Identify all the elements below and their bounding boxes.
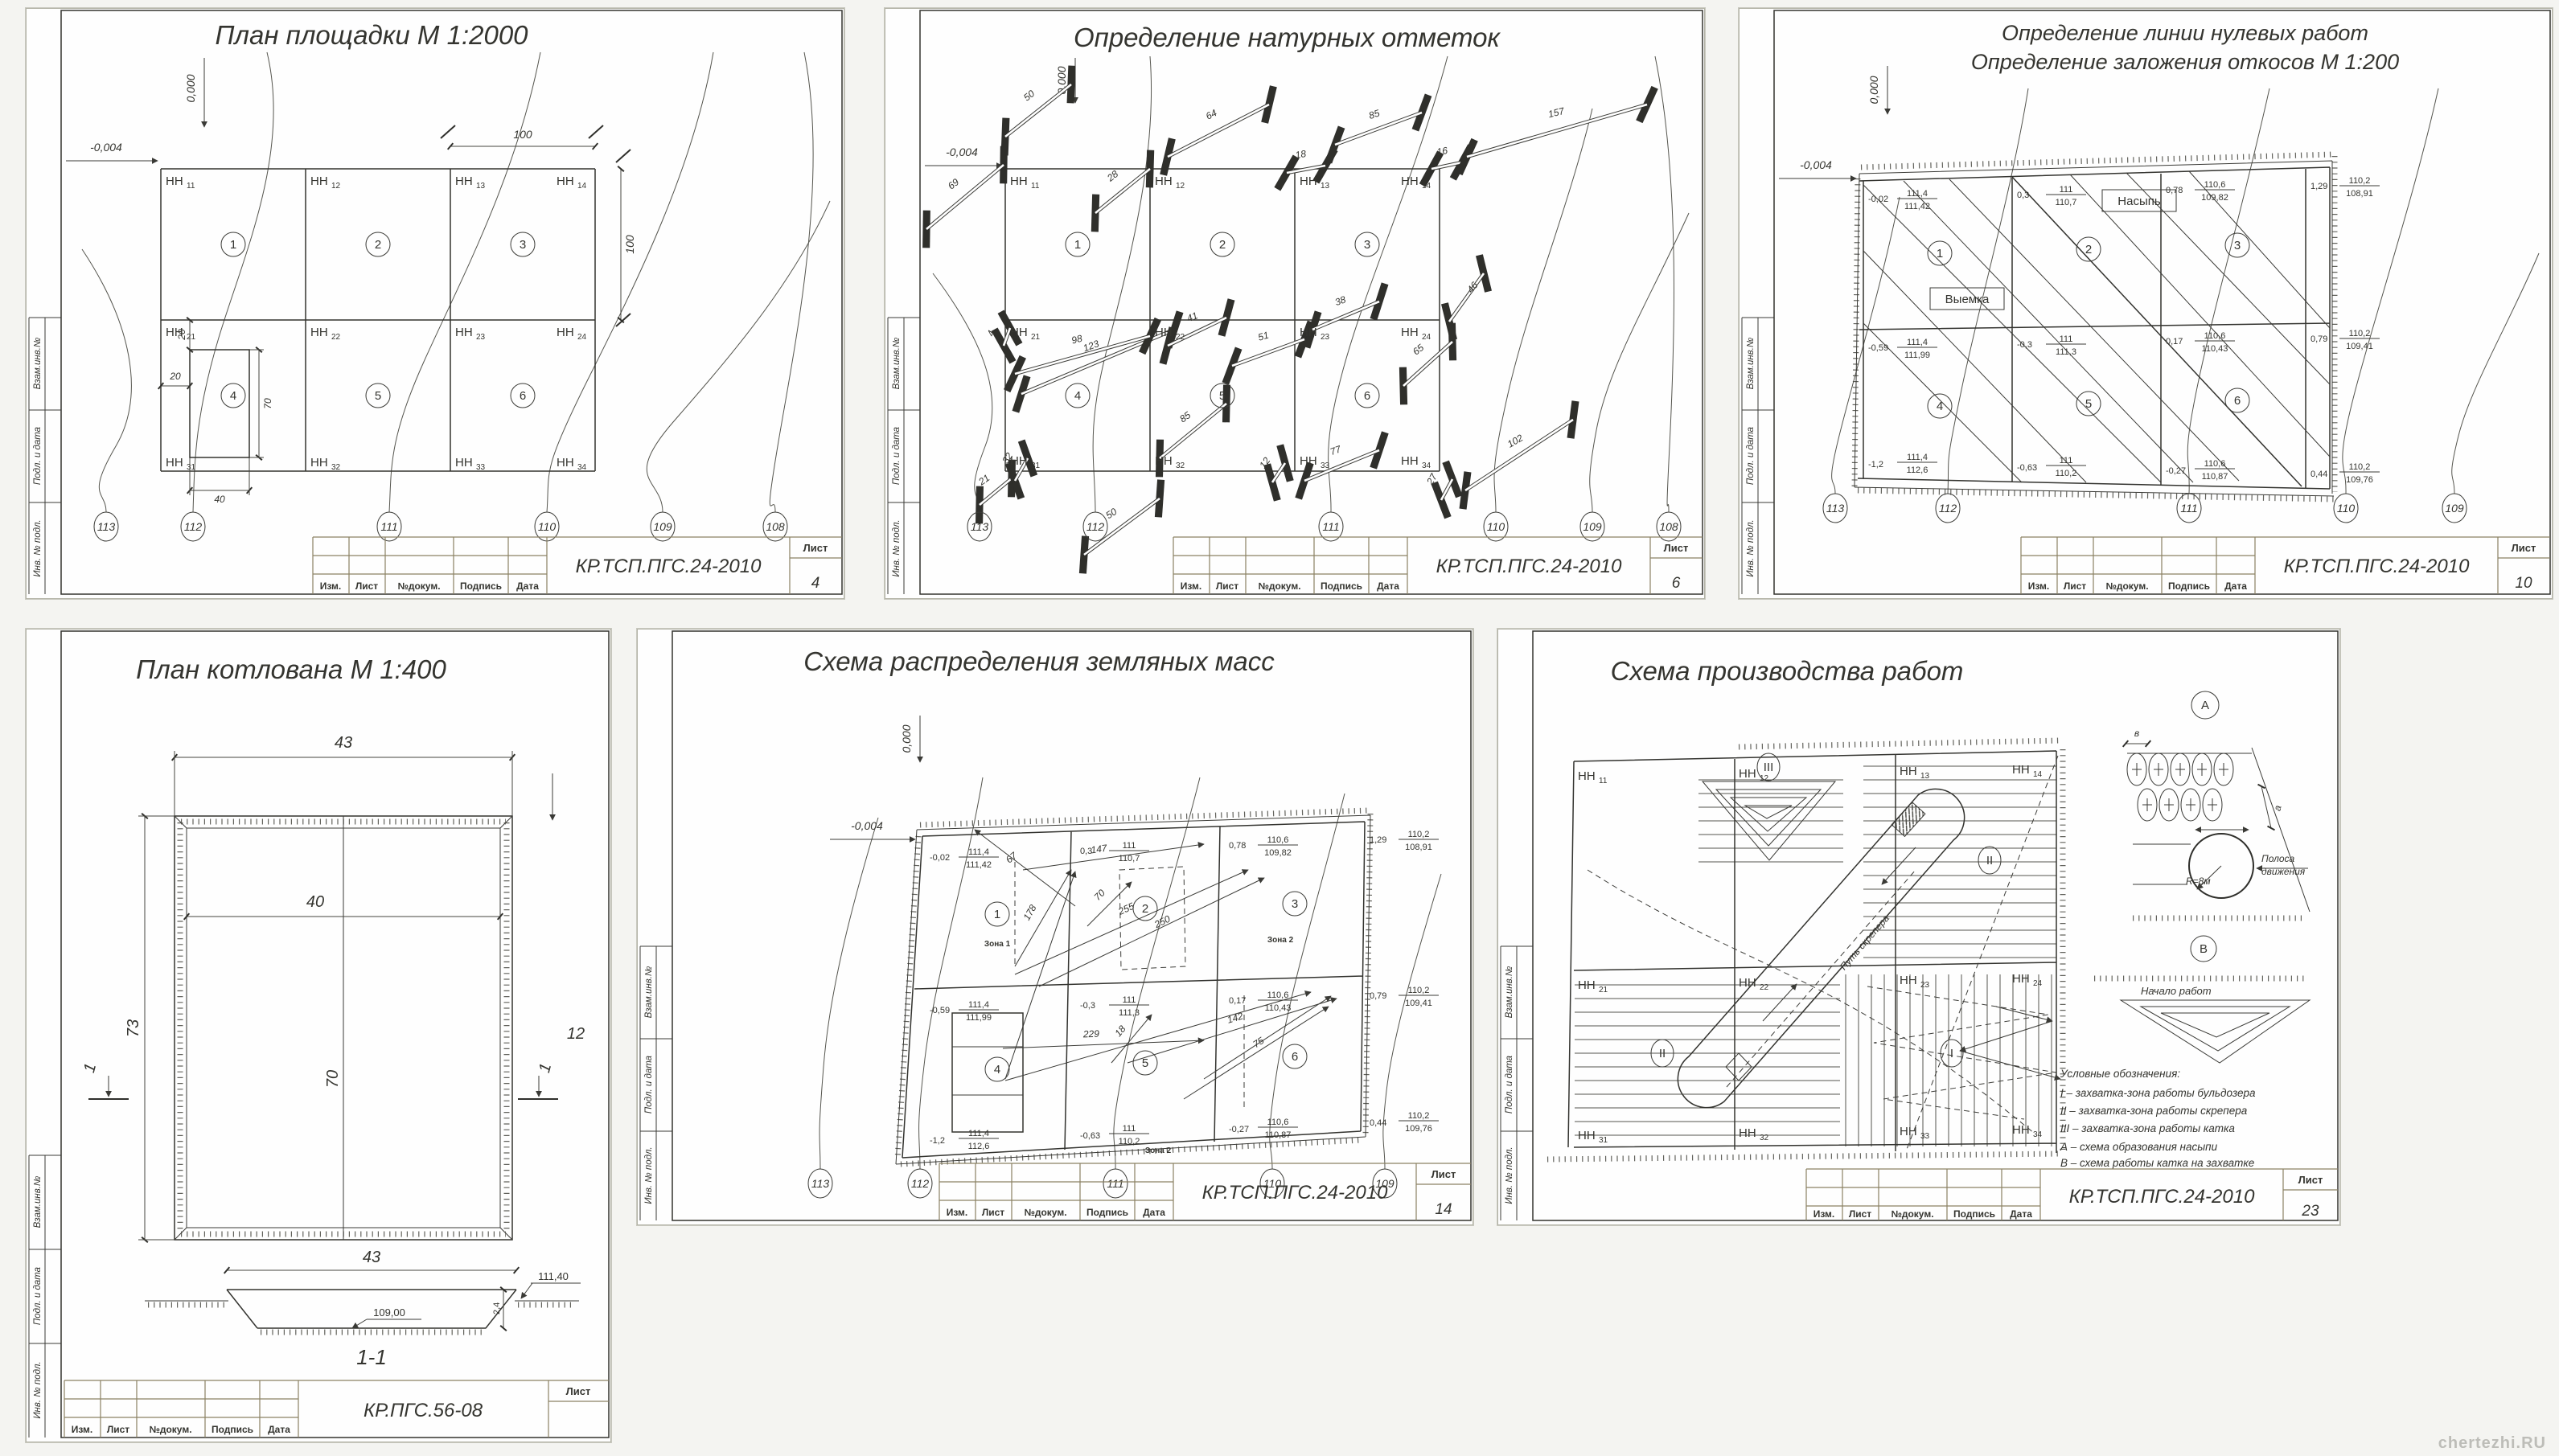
- red-mark: 111,4: [968, 1129, 989, 1138]
- node-sub: 14: [2033, 770, 2043, 779]
- sheet-number: 6: [1672, 575, 1681, 592]
- measure-label: 64: [1204, 107, 1219, 122]
- contour-lines: [82, 52, 830, 512]
- red-mark: 110,2: [1408, 830, 1430, 839]
- node-sub: 23: [1321, 333, 1330, 342]
- sheet-note: 12: [567, 1025, 585, 1043]
- contour-id: 112: [1939, 502, 1957, 515]
- black-mark: 111,42: [1904, 202, 1930, 211]
- tb-col: Изм.: [1181, 580, 1202, 592]
- cell-number: 3: [1364, 238, 1370, 252]
- tb-col: Дата: [516, 580, 539, 592]
- doc-code: КР.ТСП.ПГС.24-2010: [1436, 556, 1623, 577]
- node-values: -0,02111,4111,42 0,3111110,7 0,78110,610…: [1868, 176, 2380, 485]
- black-mark: 110,2: [1119, 1137, 1140, 1146]
- tb-col: №докум.: [149, 1424, 191, 1435]
- node-hn: НН: [1900, 974, 1917, 987]
- drawing-naturnye-otmetki: Взам.инв.№ Подл. и дата Инв. № подл. Опр…: [885, 8, 1705, 599]
- measure-label: 65: [1411, 342, 1426, 357]
- side-label: Подл. и дата: [1746, 427, 1756, 485]
- zone-label: Зона 2: [1145, 1146, 1172, 1155]
- legend-item: II – захватка-зона работы скрепера: [2060, 1105, 2248, 1117]
- dim-label: 100: [623, 235, 636, 254]
- legend-heading: Условные обозначения:: [2060, 1068, 2180, 1080]
- elevation-label: 109,00: [373, 1306, 405, 1319]
- node-hn: НН: [1155, 326, 1173, 339]
- measure-label: 69: [946, 176, 961, 191]
- drawing-plan-ploshchadki: Взам.инв.№ Подл. и дата Инв. № подл. Пла…: [26, 8, 844, 599]
- black-mark: 109,41: [2346, 342, 2373, 351]
- cell-number: 6: [1292, 1050, 1298, 1064]
- sheet-nulevye-raboty: Взам.инв.№ Подл. и дата Инв. № подл. Опр…: [1739, 8, 2553, 599]
- contour-id: 110: [1487, 520, 1505, 533]
- cell-numbers: 1 2 3 4 5 6: [985, 892, 1307, 1081]
- work-mark: -0,02: [1868, 195, 1888, 204]
- title-block: Изм. Лист №докум. Подпись Дата КР.ТСП.ПГ…: [939, 1163, 1471, 1220]
- node-sub: 23: [476, 333, 486, 342]
- node-hn: НН: [1578, 1129, 1596, 1142]
- side-label: Инв. № подл.: [33, 1361, 43, 1418]
- measure-label: 12: [1257, 455, 1272, 470]
- work-mark: -1,2: [1868, 460, 1883, 470]
- black-mark: 108,91: [1405, 843, 1432, 852]
- node-hn: НН: [2012, 763, 2030, 777]
- black-mark: 110,7: [2056, 198, 2077, 207]
- node-sub: 24: [2033, 979, 2043, 988]
- red-mark: 110,2: [1408, 1111, 1430, 1121]
- title-block: Изм. Лист №докум. Подпись Дата КР.ТСП.ПГ…: [1173, 537, 1703, 594]
- red-mark: 111,4: [1907, 453, 1928, 462]
- haul-label: 67: [1004, 849, 1020, 865]
- work-mark: -0,27: [1229, 1125, 1249, 1134]
- cell-number: 3: [2234, 239, 2241, 252]
- node-hn: НН: [1401, 326, 1419, 339]
- pit-dimensions: 43 73 40 70: [125, 734, 552, 1240]
- contour-id: 111: [1322, 520, 1339, 533]
- interpolation-labels: 50 69 28 64 18 85 16 157 123 4 98 41 51 …: [946, 88, 1567, 521]
- black-mark: 111,3: [1119, 1008, 1140, 1018]
- red-mark: 111: [2060, 185, 2073, 195]
- node-hn: НН: [557, 326, 574, 339]
- contour-id: 112: [184, 520, 203, 533]
- building-outline: [190, 350, 249, 457]
- measure-label: 16: [1436, 145, 1449, 158]
- node-hn: НН: [1739, 976, 1756, 990]
- node-sub: 12: [1176, 182, 1185, 191]
- node-hn: НН: [1401, 454, 1419, 468]
- node-sub: 32: [331, 463, 341, 472]
- work-mark: 0,78: [2166, 186, 2183, 195]
- tb-col: Подпись: [1321, 580, 1362, 592]
- sheet-number: 14: [1435, 1201, 1452, 1218]
- measure-label: 50: [1021, 88, 1037, 103]
- cell-number: 1: [1937, 247, 1943, 260]
- legend: Условные обозначения: I – захватка-зона …: [2060, 1068, 2256, 1169]
- measure-label: 18: [1295, 148, 1308, 161]
- red-mark: 110,6: [2204, 459, 2226, 469]
- tb-col: №докум.: [397, 580, 440, 592]
- black-mark: 111,3: [2056, 347, 2076, 357]
- node-sub: 11: [1031, 182, 1040, 191]
- legend-item: III – захватка-зона работы катка: [2060, 1122, 2235, 1134]
- sheet-title: Схема производства работ: [1611, 656, 1964, 686]
- side-label: Инв. № подл.: [1746, 519, 1756, 576]
- slope-value-label: -0,004: [946, 146, 978, 158]
- measure-label: 28: [1104, 168, 1120, 184]
- work-mark: 0,44: [1370, 1118, 1386, 1128]
- node-sub: 34: [577, 463, 587, 472]
- pit-plan: [175, 816, 512, 1240]
- measure-label: 38: [1333, 293, 1348, 308]
- frame: Взам.инв.№ Подл. и дата Инв. № подл.: [27, 630, 611, 1442]
- sheet-proizvodstvo-rabot: Взам.инв.№ Подл. и дата Инв. № подл. Схе…: [1497, 629, 2340, 1225]
- node-hn: НН: [2012, 972, 2030, 986]
- work-mark: -0,27: [2166, 466, 2186, 476]
- black-mark: 110,43: [2202, 344, 2228, 354]
- legend-item: В – схема работы катка на захватке: [2060, 1157, 2254, 1169]
- black-mark: 111,42: [966, 860, 992, 870]
- doc-code: КР.ТСП.ПГС.24-2010: [576, 556, 762, 577]
- dim-label: 2,4: [492, 1302, 502, 1315]
- haul-label: 178: [1021, 903, 1038, 923]
- red-mark: 111,4: [968, 847, 989, 857]
- doc-code: КР.ТСП.ПГС.24-2010: [1202, 1182, 1389, 1204]
- cell-number: 4: [994, 1063, 1000, 1077]
- drawing-plan-kotlovana: Взам.инв.№ Подл. и дата Инв. № подл. Пла…: [26, 629, 611, 1442]
- haul-label: 142: [1226, 1010, 1245, 1025]
- dim-label: 40: [214, 494, 225, 505]
- node-sub: 21: [1031, 333, 1041, 342]
- node-sub: 11: [1599, 777, 1608, 785]
- contour-id: 108: [766, 520, 785, 533]
- tb-col: №докум.: [1258, 580, 1300, 592]
- work-mark: 0,44: [2310, 470, 2327, 479]
- red-mark: 110,6: [1267, 1118, 1289, 1127]
- haul-label: 70: [1091, 887, 1107, 903]
- work-mark: -1,2: [930, 1136, 945, 1146]
- cell-number: 5: [1219, 389, 1226, 403]
- measure-label: 102: [1505, 432, 1526, 449]
- watermark: chertezhi.RU: [2438, 1434, 2546, 1453]
- black-mark: 111,99: [966, 1013, 992, 1023]
- black-mark: 110,7: [1119, 854, 1140, 863]
- cross-section: 43 109,00 111,40 2,4 1-1: [145, 1249, 581, 1369]
- dim-label: 73: [125, 1019, 142, 1037]
- cell-number: 4: [1074, 389, 1081, 403]
- legend-item: I – захватка-зона работы бульдозера: [2060, 1087, 2256, 1099]
- node-sub: 12: [331, 182, 341, 191]
- contour-id: 108: [1659, 520, 1678, 533]
- grid-node-labels: НН11 НН12 НН13 НН14 НН21 НН22 НН23 НН24 …: [166, 174, 587, 472]
- drawing-raspredelenie-mass: Взам.инв.№ Подл. и дата Инв. № подл. Схе…: [637, 629, 1473, 1225]
- red-mark: 111,4: [1907, 189, 1928, 199]
- work-mark: 0,79: [1370, 991, 1386, 1001]
- contour-id: 110: [538, 520, 557, 533]
- contour-id: 113: [811, 1177, 830, 1190]
- measure-label: 27: [1424, 471, 1440, 488]
- sheet-word: Лист: [803, 542, 828, 554]
- node-sub: 33: [1920, 1132, 1930, 1141]
- haul-labels: 67 147 178 70 255 250 229 18 142 75: [1004, 843, 1267, 1051]
- side-label: Инв. № подл.: [1505, 1146, 1514, 1204]
- node-hn: НН: [310, 326, 328, 339]
- tb-col: Дата: [2224, 580, 2247, 592]
- black-mark: 109,82: [1264, 848, 1292, 858]
- strip-label: Полоса: [2261, 853, 2295, 864]
- vyemka-label: Выемка: [1945, 293, 1990, 306]
- work-mark: -0,59: [1868, 343, 1888, 353]
- work-mark: 0,79: [2310, 334, 2327, 344]
- red-mark: 110,6: [1267, 990, 1289, 1000]
- tb-col: Подпись: [212, 1424, 253, 1435]
- black-mark: 109,82: [2201, 193, 2228, 203]
- node-hn: НН: [557, 456, 574, 470]
- node-hn: НН: [1300, 326, 1317, 339]
- work-mark: -0,59: [930, 1006, 950, 1015]
- tb-col: Подпись: [460, 580, 502, 592]
- contour-id-circles: 113 112 111 110 109: [1823, 494, 2467, 523]
- zone-roman: I: [1950, 1047, 1953, 1060]
- zone-roman: II: [1659, 1047, 1666, 1060]
- black-mark: 108,91: [2346, 189, 2373, 199]
- black-mark: 110,87: [1265, 1130, 1292, 1140]
- zone-roman: II: [1986, 854, 1993, 867]
- contour-id: 111: [2180, 502, 2197, 515]
- measure-label: 41: [1185, 310, 1200, 324]
- node-sub: 13: [1920, 772, 1930, 781]
- side-label: Взам.инв.№: [1746, 337, 1756, 389]
- side-label: Взам.инв.№: [33, 1175, 43, 1228]
- side-label: Подл. и дата: [33, 427, 43, 485]
- drawing-proizvodstvo-rabot: Взам.инв.№ Подл. и дата Инв. № подл. Схе…: [1497, 629, 2340, 1225]
- node-sub: 22: [331, 333, 341, 342]
- zone-label: Зона 1: [984, 940, 1011, 949]
- title-block: Изм. Лист №докум. Подпись Дата КР.ПГС.56…: [64, 1380, 609, 1438]
- side-label: Взам.инв.№: [33, 337, 43, 389]
- slope-arrows: 0,000 -0,004: [830, 716, 920, 839]
- work-mark: 1,29: [1370, 835, 1386, 845]
- tb-col: Изм.: [947, 1207, 968, 1218]
- side-label: Подл. и дата: [892, 427, 902, 485]
- node-sub: 24: [577, 333, 587, 342]
- contour-id: 109: [2445, 502, 2464, 515]
- section-label: 1-1: [356, 1345, 387, 1369]
- haul-label: 18: [1112, 1023, 1128, 1039]
- node-sub: 11: [187, 182, 195, 191]
- dim-label: 43: [363, 1249, 380, 1266]
- cell-number: 4: [230, 389, 236, 403]
- side-label: Подл. и дата: [33, 1267, 43, 1325]
- tb-col: Дата: [268, 1424, 290, 1435]
- sheet-title: План площадки М 1:2000: [215, 20, 528, 50]
- sheet-title: Схема распределения земляных масс: [803, 646, 1275, 676]
- node-sub: 21: [1599, 986, 1608, 995]
- node-sub: 34: [1422, 461, 1431, 470]
- cell-number: 5: [2085, 397, 2092, 411]
- slope-value-label: 0,000: [1867, 76, 1880, 104]
- red-mark: 110,2: [2349, 176, 2371, 186]
- detail-id: В: [2200, 942, 2208, 956]
- node-sub: 32: [1760, 1134, 1769, 1142]
- strip-label: движения: [2261, 866, 2306, 877]
- sheet-plan-kotlovana: Взам.инв.№ Подл. и дата Инв. № подл. Пла…: [26, 629, 611, 1442]
- black-mark: 112,6: [1907, 466, 1928, 475]
- node-hn: НН: [1739, 1126, 1756, 1140]
- node-sub: 32: [1176, 461, 1185, 470]
- slope-value-label: 0,000: [900, 724, 913, 753]
- cell-number: 1: [1074, 238, 1081, 252]
- nasyp-label: Насыпь: [2117, 195, 2161, 208]
- node-hn: НН: [1155, 454, 1173, 468]
- roller-passes: [2127, 753, 2233, 821]
- slope-value-label: -0,004: [90, 141, 122, 154]
- contour-id: 109: [1583, 520, 1602, 533]
- slope-arrows: 0,000 -0,004: [66, 58, 204, 161]
- node-hn: НН: [1300, 174, 1317, 188]
- cell-number: 2: [2085, 243, 2092, 256]
- frame: Взам.инв.№ Подл. и дата Инв. № подл.: [638, 630, 1473, 1225]
- contour-id: 112: [911, 1177, 930, 1190]
- measure-label: 50: [1103, 506, 1119, 521]
- doc-code: КР.ТСП.ПГС.24-2010: [2069, 1186, 2256, 1208]
- red-mark: 111: [1123, 1124, 1136, 1134]
- slope-value-label: 0,000: [184, 74, 197, 102]
- tb-col: Дата: [1377, 580, 1399, 592]
- dim-label: 100: [513, 128, 532, 141]
- haul-label: 229: [1082, 1028, 1100, 1040]
- contour-id: 113: [1826, 502, 1845, 515]
- tb-col: Лист: [1216, 580, 1238, 592]
- cell-number: 5: [375, 389, 381, 403]
- red-mark: 111: [2060, 334, 2073, 344]
- tb-col: Лист: [1849, 1208, 1871, 1220]
- node-sub: 21: [187, 333, 196, 342]
- measure-label: 51: [1257, 330, 1271, 343]
- dim-label: 43: [335, 734, 352, 752]
- red-mark: 110,2: [2349, 329, 2371, 338]
- sheet-title-line2: Определение заложения откосов М 1:200: [1971, 50, 2399, 74]
- sheet-word: Лист: [566, 1385, 591, 1397]
- cell-number: 2: [1219, 238, 1226, 252]
- red-mark: 111: [1123, 995, 1136, 1005]
- sheet-title: Определение натурных отметок: [1074, 23, 1501, 52]
- radius-label: R=8м: [2186, 876, 2211, 887]
- black-mark: 109,76: [2346, 475, 2373, 485]
- red-mark: 111,4: [968, 1000, 989, 1010]
- dim-label: а: [2272, 804, 2284, 812]
- work-mark: 0,78: [1229, 841, 1246, 851]
- black-mark: 109,41: [1405, 999, 1432, 1008]
- tb-col: Лист: [982, 1207, 1004, 1218]
- detail-a: А в а R=8м Полоса движения: [2126, 691, 2310, 918]
- black-mark: 109,76: [1405, 1124, 1432, 1134]
- node-hn: НН: [1739, 767, 1756, 781]
- node-sub: 31: [1599, 1136, 1608, 1145]
- start-label: Начало работ: [2141, 985, 2212, 997]
- sheet-number: 23: [2301, 1203, 2319, 1220]
- cell-number: 3: [520, 238, 526, 252]
- contour-id: 113: [97, 520, 116, 533]
- black-mark: 110,43: [1265, 1003, 1292, 1013]
- legend-item: А – схема образования насыпи: [2060, 1141, 2218, 1153]
- node-sub: 13: [476, 182, 486, 191]
- node-hn: НН: [455, 174, 473, 188]
- dim-label: 20: [176, 329, 187, 341]
- cell-number: 3: [1292, 897, 1298, 911]
- dim-label: в: [2134, 728, 2139, 739]
- red-mark: 111: [1123, 841, 1136, 851]
- node-sub: 31: [1031, 461, 1041, 470]
- contour-id: 113: [971, 520, 989, 533]
- node-sub: 31: [187, 463, 196, 472]
- work-mark: 0,17: [2166, 337, 2183, 347]
- node-hn: НН: [310, 456, 328, 470]
- tb-col: Подпись: [1086, 1207, 1128, 1218]
- node-hn: НН: [455, 456, 473, 470]
- title-block: Изм. Лист №докум. Подпись Дата КР.ТСП.ПГ…: [2021, 537, 2550, 594]
- cell-number: 2: [1142, 902, 1148, 916]
- work-mark: 0,3: [2017, 191, 2029, 200]
- slope-value-label: -0,004: [1800, 158, 1832, 171]
- side-label: Инв. № подл.: [33, 519, 43, 576]
- doc-code: КР.ПГС.56-08: [364, 1400, 483, 1421]
- zone-roman: III: [1764, 761, 1774, 774]
- black-mark: 111,99: [1904, 351, 1930, 360]
- tb-col: Лист: [107, 1424, 129, 1435]
- measure-label: 85: [1367, 107, 1381, 121]
- node-sub: 23: [1920, 981, 1930, 990]
- detail-id: А: [2201, 699, 2209, 712]
- slope-value-label: -0,004: [851, 819, 883, 832]
- survey-grid: [161, 169, 595, 471]
- work-mark: -0,63: [2017, 463, 2037, 473]
- node-sub: 33: [476, 463, 486, 472]
- side-label: Взам.инв.№: [644, 966, 654, 1018]
- haul-label: 147: [1091, 843, 1109, 856]
- frame: Взам.инв.№ Подл. и дата Инв. № подл.: [27, 9, 844, 599]
- tb-col: Дата: [2010, 1208, 2032, 1220]
- cell-number: 6: [1364, 389, 1370, 403]
- zone-label: Зона 2: [1267, 936, 1294, 945]
- tb-col: Изм.: [1813, 1208, 1835, 1220]
- node-hn: НН: [1010, 174, 1028, 188]
- work-mark: 0,3: [1080, 847, 1092, 856]
- side-label: Инв. № подл.: [644, 1146, 654, 1204]
- node-hn: НН: [166, 174, 183, 188]
- side-label: Подл. и дата: [1505, 1056, 1514, 1114]
- red-mark: 110,6: [2204, 180, 2226, 190]
- cell-number: 1: [994, 908, 1000, 921]
- red-mark: 110,6: [2204, 331, 2226, 341]
- node-hn: НН: [1155, 174, 1173, 188]
- sheet-word: Лист: [1431, 1168, 1456, 1180]
- contour-lines: [1832, 88, 2539, 494]
- tb-col: Лист: [355, 580, 378, 592]
- work-mark: 0,17: [1229, 996, 1246, 1006]
- contour-id: 111: [380, 520, 397, 533]
- work-mark: -0,3: [2017, 340, 2032, 350]
- contour-id: 112: [1086, 520, 1105, 533]
- node-hn: НН: [557, 174, 574, 188]
- node-hn: НН: [1900, 765, 1917, 778]
- measure-label: 77: [1329, 443, 1344, 457]
- dim-label: 70: [324, 1070, 342, 1088]
- cell-number: 5: [1142, 1056, 1148, 1070]
- work-mark: 1,29: [2310, 182, 2327, 191]
- sheet-title-line1: Определение линии нулевых работ: [2002, 21, 2368, 45]
- detail-b: В Начало работ: [2094, 936, 2310, 1063]
- node-sub: 12: [1760, 774, 1769, 783]
